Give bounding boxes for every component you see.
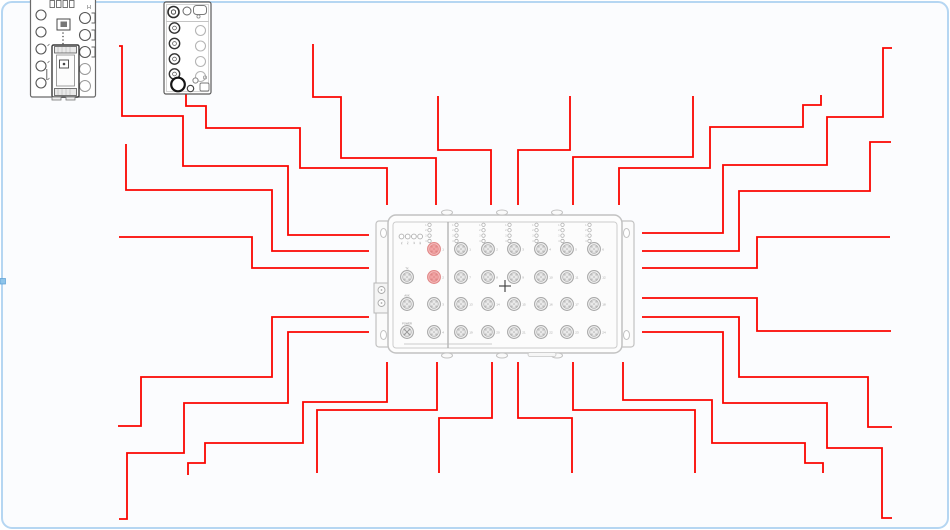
- module-2-connector-circle: [193, 78, 198, 83]
- module-2-connector-circle: [169, 38, 179, 48]
- led-indicator: [482, 223, 485, 226]
- status-led: [412, 234, 417, 239]
- port-number-label: 15: [522, 302, 526, 306]
- led-indicator: [482, 239, 485, 242]
- port-pin: [485, 274, 487, 276]
- port-pin: [564, 333, 566, 335]
- port-pin: [564, 274, 566, 276]
- port-pin: [404, 274, 406, 276]
- port-pin: [515, 246, 517, 248]
- port-pin: [435, 301, 437, 303]
- led-indicator: [428, 223, 431, 226]
- port-pin: [515, 278, 517, 280]
- port-number-label: 13: [469, 302, 473, 306]
- port-pin: [460, 248, 462, 250]
- port-pin: [595, 329, 597, 331]
- module-1[interactable]: H: [31, 0, 96, 100]
- port-pin: [513, 248, 515, 250]
- port-pin: [564, 246, 566, 248]
- port-pin: [595, 333, 597, 335]
- port-pin: [513, 331, 515, 333]
- port-pin: [435, 333, 437, 335]
- led-indicator: [455, 223, 458, 226]
- port-pin: [458, 250, 460, 252]
- port-pin: [566, 331, 568, 333]
- led-indicator: [482, 229, 485, 232]
- port-pin: [515, 329, 517, 331]
- led-indicator: [588, 229, 591, 232]
- port-pin: [431, 246, 433, 248]
- module-2-connector-circle: [183, 7, 191, 15]
- port-pin: [542, 246, 544, 248]
- port-pin: [435, 274, 437, 276]
- port-pin: [538, 250, 540, 252]
- port-pin: [591, 301, 593, 303]
- port-pin: [511, 301, 513, 303]
- port-pin: [460, 276, 462, 278]
- port-pin: [489, 305, 491, 307]
- port-pin: [489, 278, 491, 280]
- port-pin: [542, 329, 544, 331]
- diagram-canvas: HP1P2SFBF12341234TXAUXPOWER1234171319123…: [0, 0, 950, 530]
- module-1-connector-circle: [36, 10, 46, 20]
- led-indicator: [561, 234, 564, 237]
- mounting-tab-bottom: [442, 353, 453, 358]
- port-pin: [485, 305, 487, 307]
- port-number-label: 19: [469, 330, 473, 334]
- module-2-connector-circle: [196, 26, 206, 36]
- led-indicator: [508, 234, 511, 237]
- port-pin: [568, 301, 570, 303]
- port-number-label: 16: [549, 302, 553, 306]
- port-pin: [433, 331, 435, 333]
- port-pin: [538, 333, 540, 335]
- module-2-connector-circle: [169, 54, 179, 64]
- port-pin: [511, 305, 513, 307]
- port-pin: [538, 278, 540, 280]
- port-pin: [408, 274, 410, 276]
- left-port-label: TX: [405, 267, 409, 271]
- port-pin: [595, 246, 597, 248]
- port-pin: [460, 331, 462, 333]
- module-2-connector-circle: [187, 85, 193, 91]
- module-2-connector-circle: [196, 41, 206, 51]
- port-pin: [568, 250, 570, 252]
- port-number-label: 17: [575, 302, 579, 306]
- port-pin: [595, 278, 597, 280]
- wiring-diagram: HP1P2SFBF12341234TXAUXPOWER1234171319123…: [0, 0, 950, 530]
- port-pin: [515, 301, 517, 303]
- led-indicator: [535, 234, 538, 237]
- port-pin: [458, 278, 460, 280]
- led-indicator: [428, 239, 431, 242]
- port-pin: [489, 329, 491, 331]
- module-2-connector-circle: [169, 23, 179, 33]
- port-pin: [489, 274, 491, 276]
- port-pin: [485, 250, 487, 252]
- port-pin: [568, 246, 570, 248]
- module-1-dot: [62, 39, 64, 41]
- port-pin: [542, 305, 544, 307]
- port-number-label: 23: [575, 330, 579, 334]
- port-pin: [511, 278, 513, 280]
- port-pin: [489, 250, 491, 252]
- selection-handle-left[interactable]: [0, 279, 6, 285]
- bottom-slot: [528, 353, 556, 357]
- port-pin: [595, 274, 597, 276]
- port-pin: [431, 278, 433, 280]
- port-pin: [568, 274, 570, 276]
- port-pin: [542, 274, 544, 276]
- module-2-part: [194, 6, 207, 15]
- port-pin: [485, 278, 487, 280]
- led-indicator: [561, 223, 564, 226]
- port-pin: [435, 305, 437, 307]
- port-pin: [458, 301, 460, 303]
- port-pin: [511, 274, 513, 276]
- port-pin: [435, 246, 437, 248]
- port-pin: [511, 329, 513, 331]
- led-indicator: [482, 234, 485, 237]
- port-pin: [515, 274, 517, 276]
- led-indicator: [535, 239, 538, 242]
- led-indicator: [455, 239, 458, 242]
- led-indicator: [588, 239, 591, 242]
- port-pin: [568, 333, 570, 335]
- port-pin: [593, 276, 595, 278]
- port-pin: [487, 276, 489, 278]
- port-pin: [591, 333, 593, 335]
- port-pin: [591, 329, 593, 331]
- port-pin: [431, 301, 433, 303]
- module-1-connector-circle: [36, 27, 46, 37]
- port-pin: [458, 246, 460, 248]
- port-connector[interactable]: [401, 271, 414, 284]
- port-pin: [404, 305, 406, 307]
- port-pin: [538, 246, 540, 248]
- port-pin: [511, 333, 513, 335]
- port-number-label: 11: [575, 275, 578, 279]
- led-indicator: [588, 223, 591, 226]
- port-pin: [462, 274, 464, 276]
- port-pin: [568, 278, 570, 280]
- port-pin: [566, 303, 568, 305]
- module-1-connector-circle: [36, 44, 46, 54]
- port-pin: [564, 329, 566, 331]
- port-pin: [431, 305, 433, 307]
- port-pin: [564, 305, 566, 307]
- port-pin: [538, 305, 540, 307]
- port-pin: [515, 250, 517, 252]
- port-pin: [462, 278, 464, 280]
- led-indicator: [588, 234, 591, 237]
- port-pin: [460, 303, 462, 305]
- port-pin: [435, 329, 437, 331]
- port-pin: [591, 246, 593, 248]
- port-pin: [540, 331, 542, 333]
- port-pin: [462, 305, 464, 307]
- port-pin: [431, 333, 433, 335]
- port-pin: [433, 303, 435, 305]
- led-indicator: [535, 223, 538, 226]
- port-pin: [489, 301, 491, 303]
- port-number-label: 12: [602, 275, 606, 279]
- port-pin: [591, 250, 593, 252]
- module-1-connector-circle: [80, 81, 91, 92]
- led-indicator: [508, 229, 511, 232]
- port-pin: [515, 305, 517, 307]
- led-indicator: [508, 223, 511, 226]
- port-pin: [406, 303, 408, 305]
- module-1-label: H: [87, 5, 91, 11]
- port-pin: [485, 333, 487, 335]
- port-pin: [542, 278, 544, 280]
- port-pin: [431, 250, 433, 252]
- port-pin: [564, 301, 566, 303]
- port-pin: [462, 333, 464, 335]
- io-module-device[interactable]: P1P2SFBF12341234TXAUXPOWER12341713191234…: [374, 210, 634, 358]
- port-pin: [540, 276, 542, 278]
- port-pin: [591, 274, 593, 276]
- port-pin: [433, 248, 435, 250]
- port-pin: [435, 250, 437, 252]
- mounting-tab-top: [497, 210, 508, 215]
- module-1-dot: [62, 32, 64, 34]
- module-1-connector-circle: [80, 64, 91, 75]
- module-1-dot: [63, 63, 66, 66]
- port-pin: [458, 274, 460, 276]
- port-pin: [489, 333, 491, 335]
- status-led: [399, 234, 404, 239]
- port-pin: [435, 278, 437, 280]
- module-1-connector-circle: [80, 30, 91, 41]
- port-pin: [408, 301, 410, 303]
- led-indicator: [455, 234, 458, 237]
- module-1-connector-circle: [80, 47, 91, 58]
- port-pin: [591, 305, 593, 307]
- module-1-connector-circle: [80, 13, 91, 24]
- port-pin: [542, 333, 544, 335]
- port-pin: [404, 301, 406, 303]
- port-pin: [538, 301, 540, 303]
- module-1-dot: [62, 36, 64, 38]
- port-pin: [408, 278, 410, 280]
- port-pin: [462, 301, 464, 303]
- port-pin: [540, 303, 542, 305]
- module-2-connector-circle: [196, 57, 206, 67]
- module-1-part: [52, 97, 61, 100]
- port-pin: [513, 276, 515, 278]
- module-1-connector-circle: [36, 78, 46, 88]
- status-led: [418, 234, 423, 239]
- port-pin: [462, 250, 464, 252]
- port-pin: [568, 329, 570, 331]
- module-1-connector-circle: [36, 61, 46, 71]
- port-pin: [595, 305, 597, 307]
- port-pin: [431, 329, 433, 331]
- clamp-screw-dot: [381, 289, 383, 291]
- bracket-hole: [624, 331, 630, 340]
- port-pin: [564, 278, 566, 280]
- port-pin: [591, 278, 593, 280]
- port-pin: [489, 246, 491, 248]
- port-pin: [485, 329, 487, 331]
- port-pin: [538, 274, 540, 276]
- port-pin: [566, 248, 568, 250]
- led-indicator: [535, 229, 538, 232]
- port-pin: [404, 278, 406, 280]
- port-number-label: 18: [602, 302, 606, 306]
- port-pin: [458, 333, 460, 335]
- port-number-label: 24: [602, 330, 606, 334]
- port-pin: [595, 250, 597, 252]
- module-2[interactable]: [164, 2, 211, 94]
- port-connector[interactable]: [401, 298, 414, 311]
- module-2-connector-circle: [171, 78, 185, 92]
- left-port-label: AUX: [404, 294, 410, 298]
- clamp-screw-dot: [381, 302, 383, 304]
- module-2-part: [200, 83, 209, 91]
- port-number-label: 20: [496, 330, 500, 334]
- module-1-part: [66, 97, 75, 100]
- led-indicator: [561, 239, 564, 242]
- port-pin: [568, 305, 570, 307]
- port-pin: [462, 329, 464, 331]
- port-pin: [595, 301, 597, 303]
- status-led: [405, 234, 410, 239]
- module-1-dot: [62, 43, 64, 45]
- port-pin: [458, 305, 460, 307]
- port-pin: [538, 329, 540, 331]
- module-2-connector-circle: [168, 7, 179, 18]
- port-number-label: 14: [496, 302, 500, 306]
- port-number-label: 10: [549, 275, 553, 279]
- port-pin: [566, 276, 568, 278]
- port-pin: [487, 248, 489, 250]
- led-indicator: [428, 234, 431, 237]
- port-pin: [564, 250, 566, 252]
- port-pin: [540, 248, 542, 250]
- port-pin: [487, 303, 489, 305]
- port-pin: [487, 331, 489, 333]
- port-pin: [458, 329, 460, 331]
- bracket-hole: [381, 331, 387, 340]
- port-pin: [408, 305, 410, 307]
- port-number-label: 22: [549, 330, 553, 334]
- led-indicator: [561, 229, 564, 232]
- mounting-tab-top: [552, 210, 563, 215]
- port-pin: [511, 246, 513, 248]
- port-pin: [462, 246, 464, 248]
- port-pin: [513, 303, 515, 305]
- port-pin: [511, 250, 513, 252]
- mounting-tab-top: [442, 210, 453, 215]
- port-pin: [593, 303, 595, 305]
- bracket-hole: [381, 229, 387, 238]
- port-number-label: 21: [522, 330, 526, 334]
- led-indicator: [428, 229, 431, 232]
- port-pin: [542, 250, 544, 252]
- port-pin: [542, 301, 544, 303]
- mounting-tab-bottom: [497, 353, 508, 358]
- led-indicator: [508, 239, 511, 242]
- module-1-part: [61, 22, 68, 28]
- port-pin: [406, 276, 408, 278]
- port-pin: [593, 331, 595, 333]
- port-pin: [485, 301, 487, 303]
- port-pin: [593, 248, 595, 250]
- port-pin: [433, 276, 435, 278]
- led-indicator: [455, 229, 458, 232]
- port-pin: [485, 246, 487, 248]
- left-port-label: POWER: [402, 322, 412, 326]
- port-pin: [431, 274, 433, 276]
- port-pin: [515, 333, 517, 335]
- bracket-hole: [624, 229, 630, 238]
